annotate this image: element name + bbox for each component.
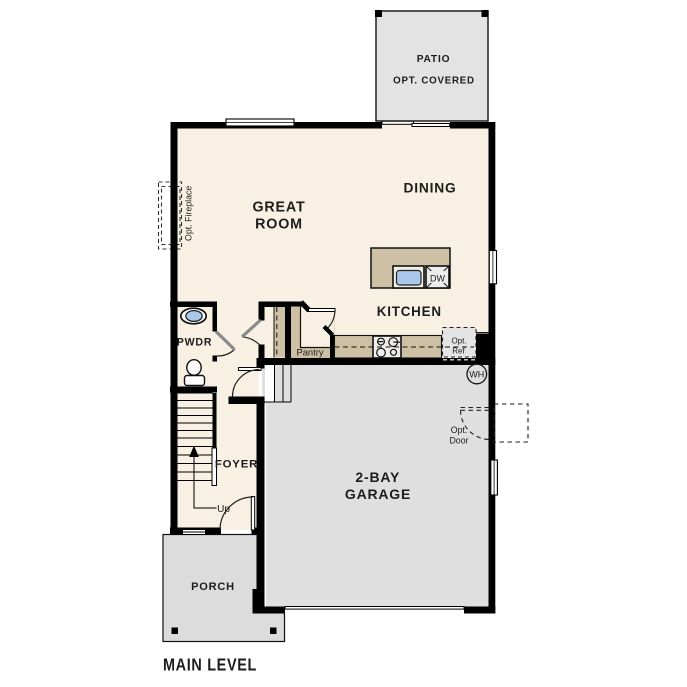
svg-text:DINING: DINING [403,180,456,195]
svg-text:Up: Up [217,504,230,515]
svg-text:PWDR: PWDR [177,337,213,349]
svg-text:KITCHEN: KITCHEN [377,304,442,319]
svg-text:WH: WH [469,369,484,379]
svg-text:MAIN LEVEL: MAIN LEVEL [163,655,257,675]
svg-text:FOYER: FOYER [215,459,258,471]
svg-text:Ref: Ref [452,347,465,356]
svg-text:GREAT: GREAT [253,200,306,216]
svg-text:Door: Door [449,436,468,446]
svg-text:ROOM: ROOM [255,217,303,233]
svg-text:PORCH: PORCH [191,581,235,593]
svg-text:PATIO: PATIO [417,54,451,65]
svg-text:Opt.: Opt. [451,425,468,435]
svg-text:Opt. Fireplace: Opt. Fireplace [184,186,194,241]
svg-text:Opt.: Opt. [451,337,466,346]
svg-text:2-BAY: 2-BAY [355,469,400,485]
svg-text:OPT. COVERED: OPT. COVERED [393,76,475,87]
svg-text:GARAGE: GARAGE [345,486,411,502]
svg-text:DW: DW [430,274,445,284]
svg-text:Pantry: Pantry [296,346,323,357]
